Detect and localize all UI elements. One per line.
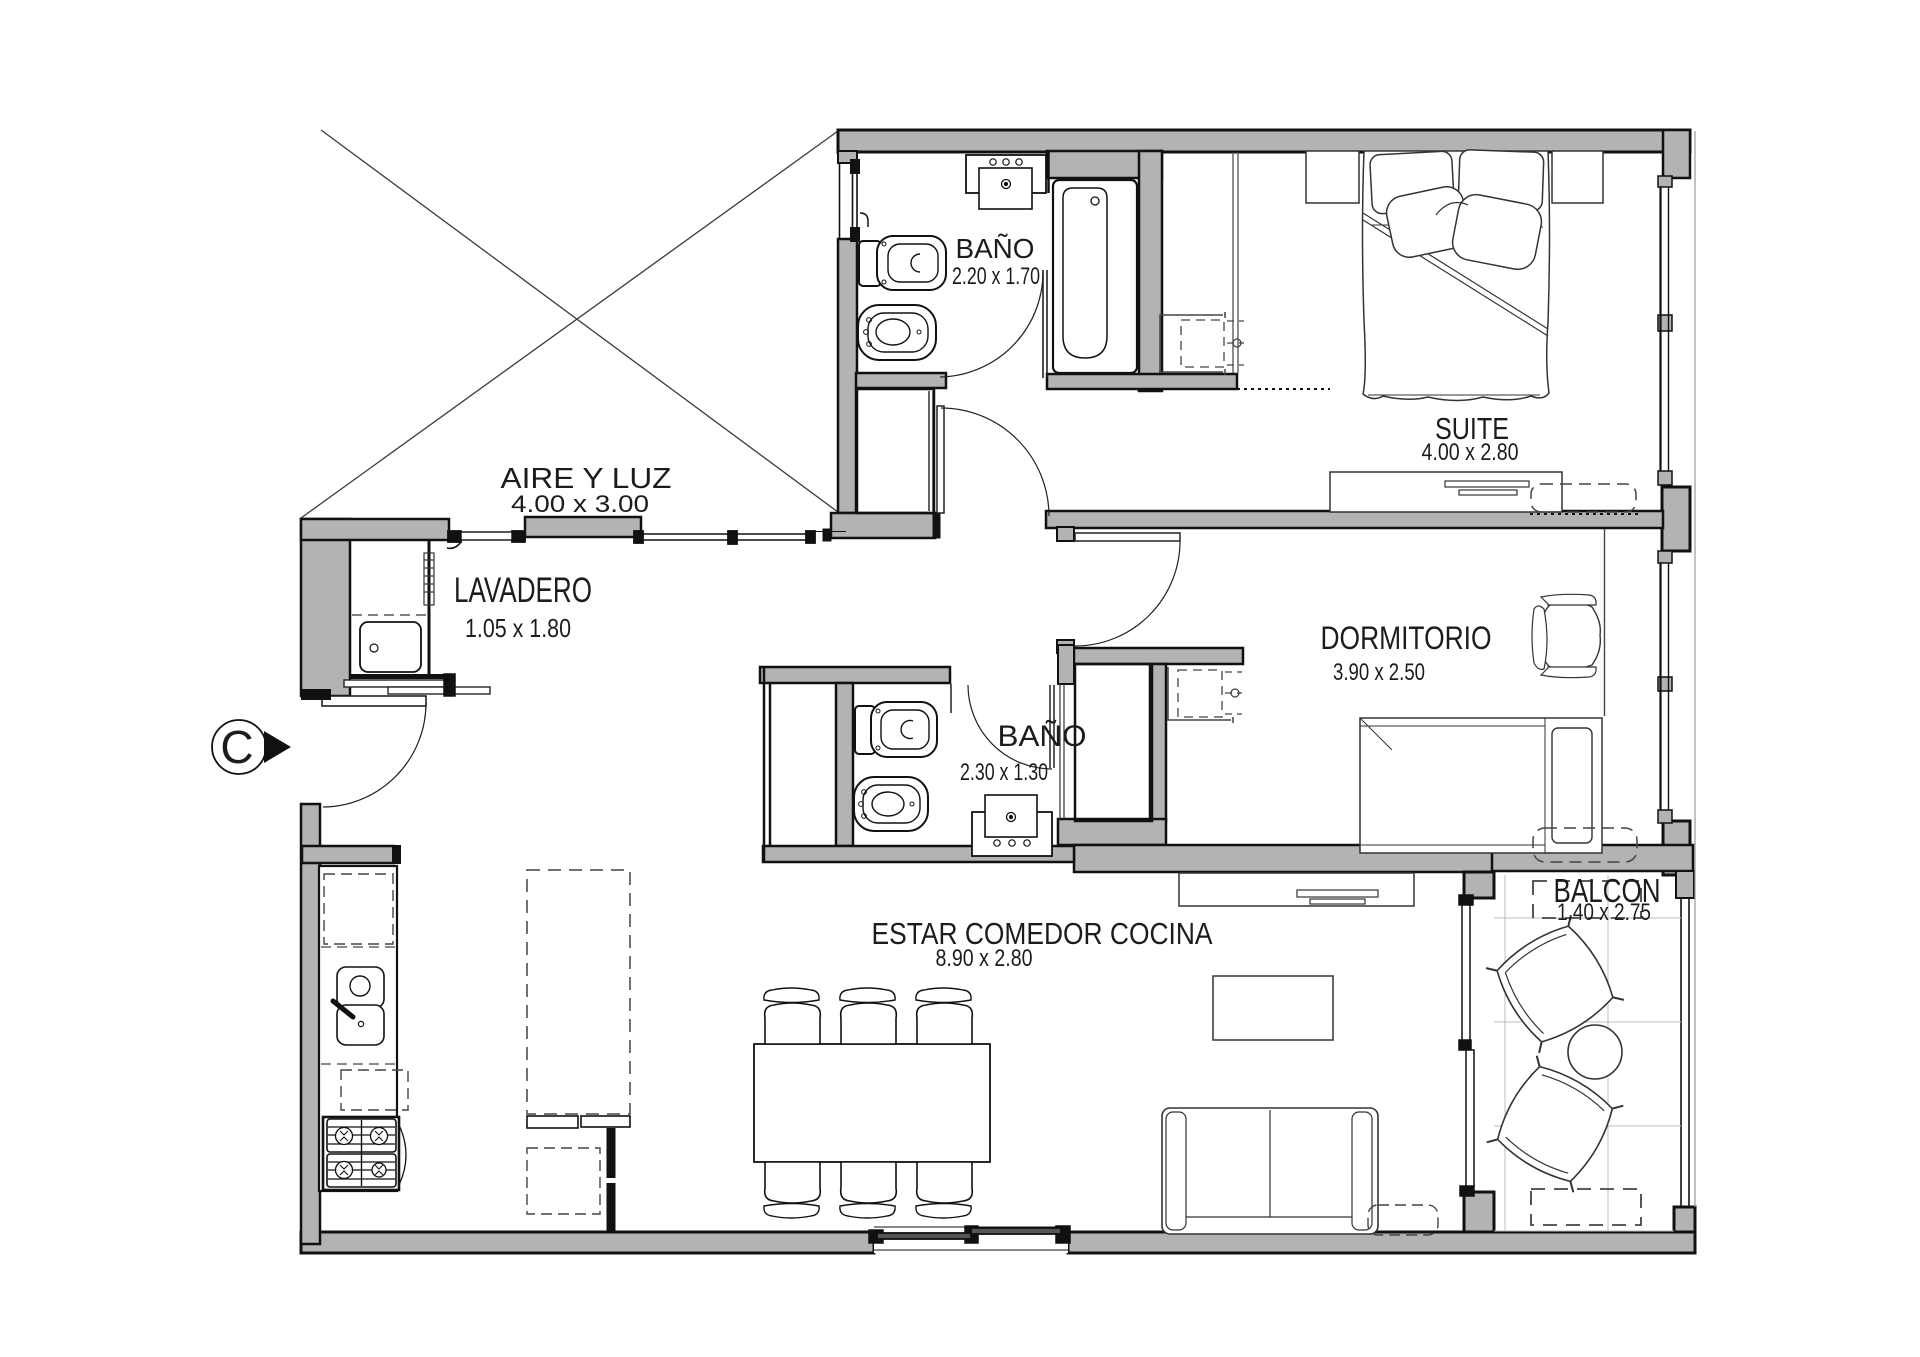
svg-text:4.00 x 3.00: 4.00 x 3.00	[511, 491, 649, 518]
svg-text:C: C	[220, 721, 253, 773]
svg-text:3.90 x 2.50: 3.90 x 2.50	[1333, 659, 1425, 686]
svg-text:4.00 x 2.80: 4.00 x 2.80	[1422, 439, 1519, 466]
svg-text:1.40 x 2.75: 1.40 x 2.75	[1557, 899, 1651, 926]
svg-text:LAVADERO: LAVADERO	[454, 571, 592, 610]
svg-text:2.30 x 1.30: 2.30 x 1.30	[960, 759, 1048, 786]
svg-text:DORMITORIO: DORMITORIO	[1321, 620, 1492, 656]
svg-text:1.05 x 1.80: 1.05 x 1.80	[465, 613, 571, 643]
svg-text:2.20 x 1.70: 2.20 x 1.70	[952, 263, 1040, 290]
svg-text:BAÑO: BAÑO	[956, 233, 1035, 264]
svg-text:8.90 x 2.80: 8.90 x 2.80	[936, 945, 1033, 972]
svg-text:ESTAR COMEDOR COCINA: ESTAR COMEDOR COCINA	[872, 916, 1213, 951]
svg-text:BAÑO: BAÑO	[998, 719, 1087, 753]
